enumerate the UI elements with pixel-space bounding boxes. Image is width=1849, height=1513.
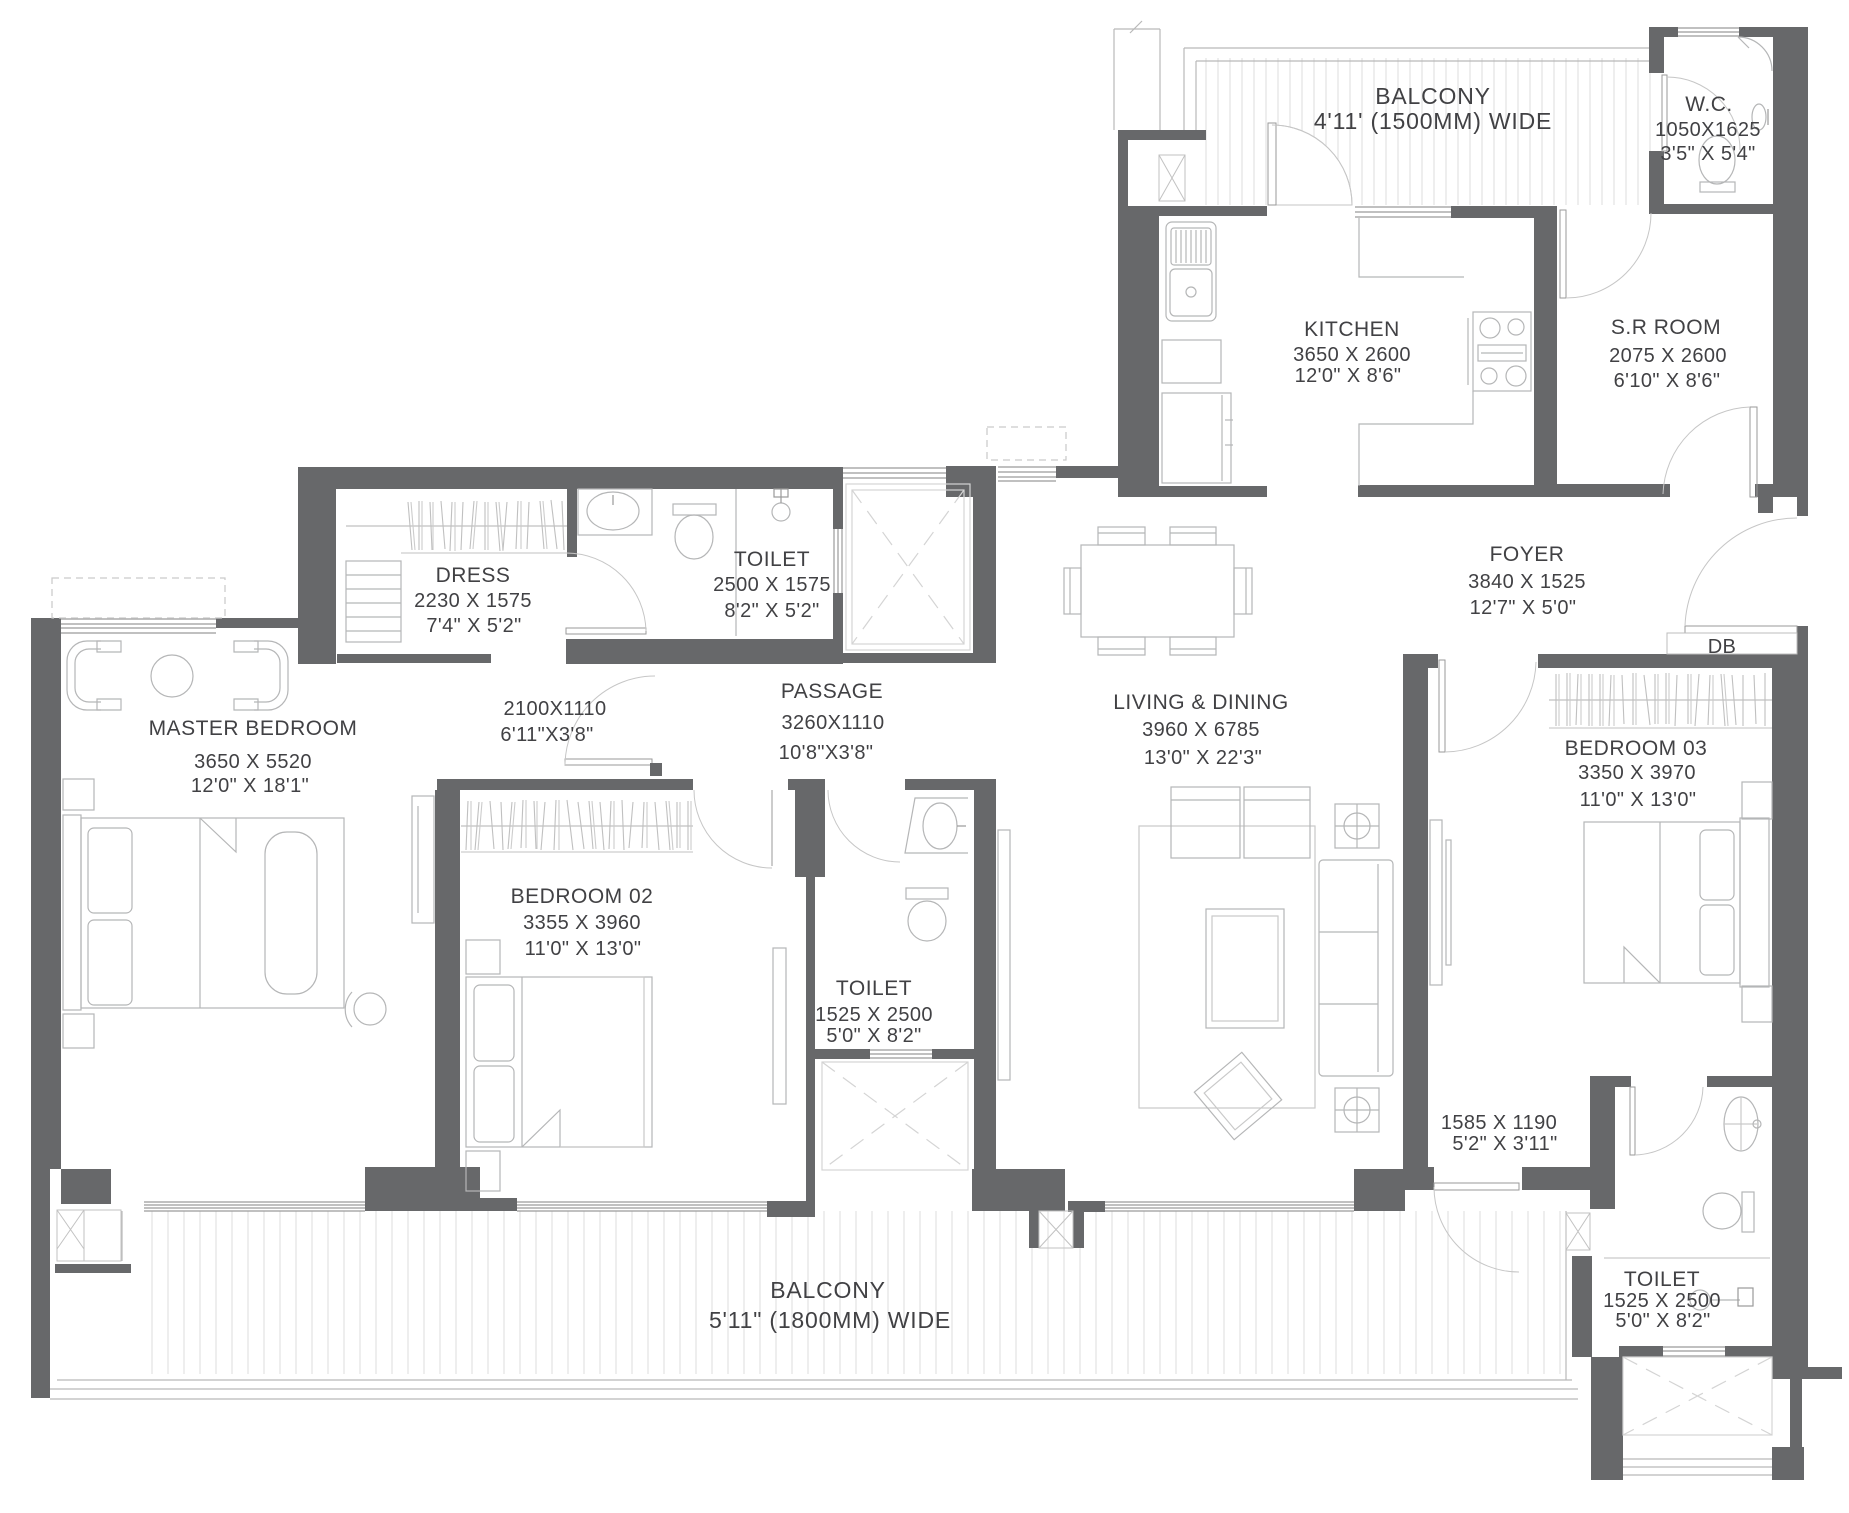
svg-text:LIVING & DINING: LIVING & DINING (1113, 691, 1289, 714)
svg-text:1525 X 2500: 1525 X 2500 (815, 1004, 933, 1026)
svg-text:5'2" X 3'11": 5'2" X 3'11" (1452, 1133, 1557, 1155)
svg-text:3840 X 1525: 3840 X 1525 (1468, 571, 1586, 593)
svg-text:2075 X 2600: 2075 X 2600 (1609, 345, 1727, 367)
svg-text:BEDROOM 03: BEDROOM 03 (1565, 737, 1708, 760)
svg-text:2230 X 1575: 2230 X 1575 (414, 590, 532, 612)
svg-text:3355 X 3960: 3355 X 3960 (523, 912, 641, 934)
svg-text:10'8"X3'8": 10'8"X3'8" (779, 742, 874, 764)
svg-text:3650 X 2600: 3650 X 2600 (1293, 344, 1411, 366)
svg-text:2100X1110: 2100X1110 (504, 698, 607, 720)
svg-text:KITCHEN: KITCHEN (1304, 318, 1400, 341)
svg-text:2500 X 1575: 2500 X 1575 (713, 574, 831, 596)
svg-text:6'10" X 8'6": 6'10" X 8'6" (1614, 370, 1721, 392)
svg-text:13'0" X 22'3": 13'0" X 22'3" (1144, 747, 1262, 769)
svg-text:12'7" X 5'0": 12'7" X 5'0" (1470, 597, 1577, 619)
svg-text:5'0" X 8'2": 5'0" X 8'2" (1615, 1310, 1710, 1332)
svg-text:3350 X 3970: 3350 X 3970 (1578, 762, 1696, 784)
svg-text:W.C.: W.C. (1685, 93, 1733, 116)
svg-text:DB: DB (1708, 636, 1737, 658)
svg-text:BALCONY: BALCONY (770, 1277, 886, 1303)
svg-text:3260X1110: 3260X1110 (782, 712, 885, 734)
svg-text:8'2" X 5'2": 8'2" X 5'2" (724, 600, 819, 622)
svg-text:4'11' (1500MM) WIDE: 4'11' (1500MM) WIDE (1314, 108, 1552, 134)
svg-text:BALCONY: BALCONY (1375, 83, 1491, 109)
svg-text:TOILET: TOILET (836, 977, 912, 1000)
svg-text:TOILET: TOILET (1624, 1268, 1700, 1291)
svg-text:6'11"X3'8": 6'11"X3'8" (500, 724, 593, 746)
svg-text:12'0" X 8'6": 12'0" X 8'6" (1295, 365, 1402, 387)
svg-text:7'4" X 5'2": 7'4" X 5'2" (426, 615, 521, 637)
svg-text:PASSAGE: PASSAGE (781, 680, 883, 703)
svg-text:MASTER BEDROOM: MASTER BEDROOM (149, 717, 358, 740)
svg-text:3650 X 5520: 3650 X 5520 (194, 751, 312, 773)
svg-text:1525 X 2500: 1525 X 2500 (1603, 1290, 1721, 1312)
svg-text:5'11" (1800MM) WIDE: 5'11" (1800MM) WIDE (709, 1307, 951, 1333)
svg-text:5'0" X 8'2": 5'0" X 8'2" (826, 1025, 921, 1047)
svg-text:1585 X 1190: 1585 X 1190 (1441, 1112, 1557, 1134)
svg-text:1050X1625: 1050X1625 (1655, 119, 1761, 141)
svg-text:BEDROOM 02: BEDROOM 02 (511, 885, 654, 908)
svg-text:S.R ROOM: S.R ROOM (1611, 316, 1721, 339)
svg-text:3960 X 6785: 3960 X 6785 (1142, 719, 1260, 741)
svg-text:DRESS: DRESS (436, 564, 511, 587)
svg-text:11'0" X 13'0": 11'0" X 13'0" (525, 938, 642, 960)
svg-text:TOILET: TOILET (734, 548, 810, 571)
svg-text:FOYER: FOYER (1490, 543, 1565, 566)
svg-text:11'0" X 13'0": 11'0" X 13'0" (1580, 789, 1697, 811)
svg-text:12'0" X 18'1": 12'0" X 18'1" (191, 775, 309, 797)
svg-text:3'5" X 5'4": 3'5" X 5'4" (1660, 143, 1755, 165)
